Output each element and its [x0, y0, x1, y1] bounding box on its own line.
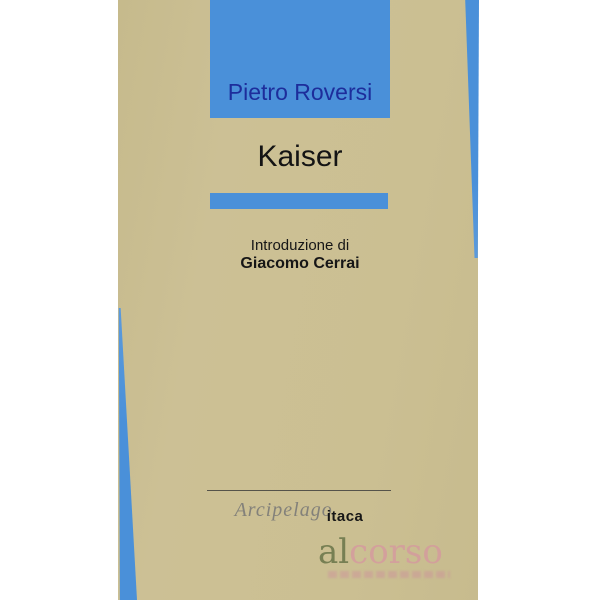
watermark-al: al — [318, 532, 349, 572]
publisher-block: Arcipelagoitaca — [207, 490, 391, 522]
book-title: Kaiser — [210, 141, 390, 173]
book-cover-photo: Pietro Roversi Kaiser Introduzione di Gi… — [0, 0, 600, 600]
intro-block: Introduzione di Giacomo Cerrai — [178, 237, 422, 273]
publisher-logo: Arcipelagoitaca — [207, 499, 391, 522]
watermark: alcorso — [318, 535, 443, 569]
author-band: Pietro Roversi — [210, 0, 390, 118]
publisher-script-name: Arcipelago — [235, 499, 333, 521]
intro-label: Introduzione di — [178, 237, 422, 254]
title-underline-bar — [210, 193, 388, 209]
watermark-tagline — [328, 571, 450, 578]
publisher-suffix-name: itaca — [327, 508, 364, 525]
intro-author: Giacomo Cerrai — [178, 254, 422, 273]
publisher-rule — [207, 490, 391, 491]
watermark-corso: corso — [349, 532, 443, 572]
author-name: Pietro Roversi — [228, 81, 372, 118]
